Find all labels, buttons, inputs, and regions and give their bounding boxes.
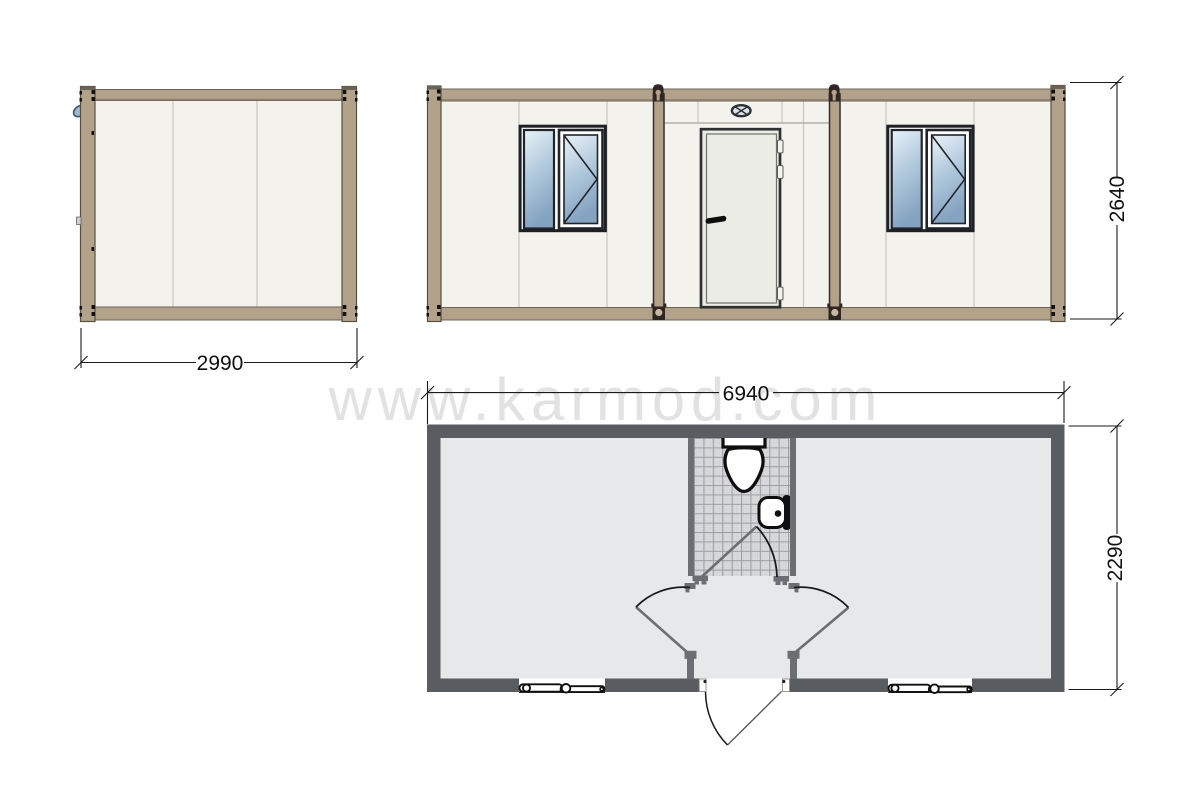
svg-text:2290: 2290 bbox=[1104, 535, 1127, 582]
svg-text:www.karmod.com: www.karmod.com bbox=[328, 366, 884, 433]
svg-text:2640: 2640 bbox=[1106, 176, 1129, 223]
svg-text:6940: 6940 bbox=[723, 383, 770, 406]
svg-text:2990: 2990 bbox=[197, 352, 244, 375]
